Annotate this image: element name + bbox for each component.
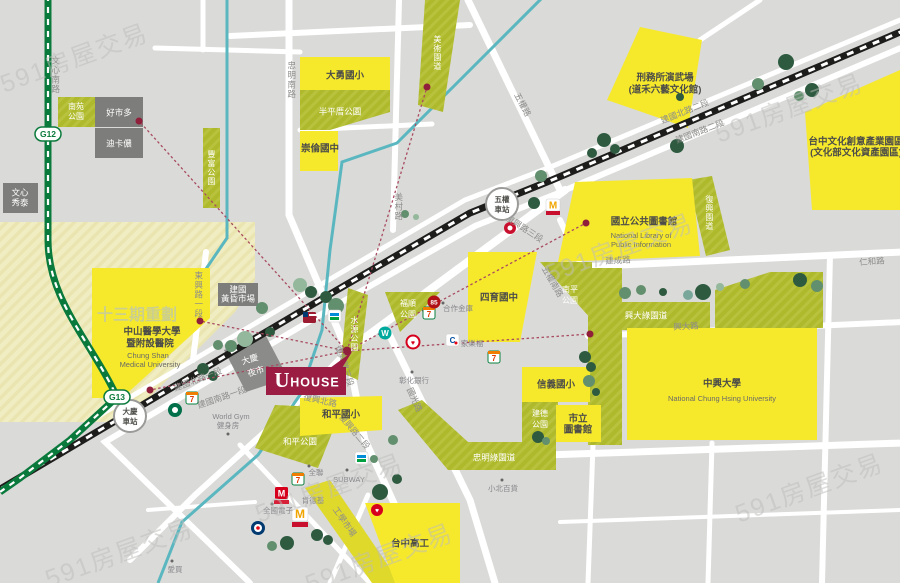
svg-text:G13: G13 [109, 392, 125, 402]
school-label: 崇倫國中 [301, 143, 339, 155]
carrefour-icon: C [446, 334, 459, 346]
park-label: 豐富公園 [207, 149, 216, 186]
poi-label: 家樂福 [461, 338, 484, 348]
seven-eleven-icon: 7 [488, 351, 500, 363]
school-label: 大勇國小 [326, 70, 365, 82]
svg-text:五權: 五權 [495, 194, 510, 204]
park-label: 福順 [400, 299, 416, 308]
school-label-en: Medical University [120, 360, 181, 369]
school-label: 中山醫學大學 [123, 326, 181, 338]
place-label: 黃昏市場 [221, 293, 256, 303]
school-label: 和平國小 [321, 409, 361, 421]
landmark-label: (道禾六藝文化館) [629, 84, 702, 96]
svg-text:♥: ♥ [411, 340, 415, 347]
school-label-en: Chung Shan [127, 351, 169, 360]
park-label: 美術園道 [433, 34, 442, 71]
svg-text:M: M [549, 201, 557, 212]
poi-dot [227, 433, 230, 436]
poi-label: 愛買 [168, 564, 183, 574]
wellcome-market-icon: ♥ [407, 336, 420, 349]
mcdonalds-icon: M [546, 199, 560, 215]
uhouse-logo-u: U [274, 368, 289, 392]
landmark-label: 刑務所演武場 [636, 72, 694, 84]
landmark-label: 市立 [568, 413, 588, 425]
zone-label: 十三期重劃 [97, 305, 177, 324]
place-label: 好市多 [106, 107, 132, 117]
park-label: 南苑 [68, 101, 84, 111]
landmark-label: 台中文化創意產業園區 [808, 136, 900, 148]
park-label: 復興園道 [705, 194, 714, 231]
location-map[interactable]: M M 7 7 7 7 W 85 ♥ C M ♥ [0, 0, 900, 583]
metro-g13-badge: G13 [104, 390, 130, 404]
svg-text:大慶: 大慶 [123, 406, 138, 416]
poi-dot [171, 560, 174, 563]
poi-label: 全聯 [309, 467, 324, 477]
svg-text:7: 7 [492, 354, 497, 363]
park-label: 公園 [532, 420, 548, 429]
svg-text:7: 7 [190, 395, 195, 404]
park-label: 公園 [400, 310, 416, 319]
park-label: 忠明綠園道 [473, 452, 516, 462]
school-label: 中興大學 [703, 378, 742, 390]
park-label: 公園 [68, 112, 84, 121]
landmark-label: 圖書館 [564, 424, 593, 436]
svg-text:♥: ♥ [375, 508, 379, 515]
poi-dot [501, 479, 504, 482]
park-label: 興大綠園道 [625, 310, 668, 320]
familymart-icon [328, 310, 341, 322]
seven-eleven-icon: 7 [423, 307, 435, 319]
uhouse-logo-house: HOUSE [290, 375, 339, 389]
map-canvas: M M 7 7 7 7 W 85 ♥ C M ♥ [0, 0, 900, 583]
place-label: 文心 [11, 187, 29, 197]
svg-text:7: 7 [427, 310, 432, 319]
svg-text:W: W [381, 329, 389, 338]
wuquan-station: 五權 車站 [486, 188, 518, 220]
poi-dot [411, 371, 414, 374]
daqing-station: 大慶 車站 [114, 400, 146, 432]
watsons-icon: W [379, 327, 392, 340]
park-label: 半平厝公園 [319, 106, 362, 116]
85c-cafe-icon: 85 [428, 296, 441, 309]
svg-text:85: 85 [430, 300, 438, 307]
park-label: 南平 [562, 284, 578, 294]
school-label: 四育國中 [480, 292, 518, 304]
poi-label: 合作金庫 [443, 303, 473, 313]
starbucks-icon [168, 403, 182, 417]
svg-text:車站: 車站 [123, 416, 138, 426]
school-label: 暨附設醫院 [126, 338, 174, 350]
poi-label: World Gym [212, 412, 249, 421]
park-label: 水源公園 [350, 315, 359, 352]
place-label: 秀泰 [11, 197, 29, 207]
heart-brand-icon: ♥ [371, 504, 383, 516]
road-label: 仁和路 [859, 255, 886, 267]
road-label: 興大路 [673, 321, 699, 332]
park-label: 公園 [562, 296, 578, 305]
park-label: 和平公園 [283, 436, 317, 446]
park-label: 建德 [532, 408, 548, 418]
school-label: 信義國小 [537, 379, 576, 391]
school-label-en: National Chung Hsing University [668, 394, 776, 403]
svg-text:G12: G12 [40, 129, 56, 139]
metro-g12-badge: G12 [35, 127, 61, 141]
poi-label: 小北百貨 [488, 483, 518, 493]
road-label: 美村路 [394, 192, 404, 221]
landmark-label: (文化部文化資產園區) [810, 147, 900, 159]
place-label: 迪卡儂 [106, 138, 132, 148]
road-label: 忠明南路 [287, 61, 297, 99]
flag-brand-icon [303, 312, 316, 323]
svg-text:車站: 車站 [495, 204, 510, 214]
road-label: 東興路一段 [194, 271, 204, 319]
poi-label: 彰化銀行 [399, 375, 429, 385]
poi-label: 健身房 [217, 420, 240, 430]
